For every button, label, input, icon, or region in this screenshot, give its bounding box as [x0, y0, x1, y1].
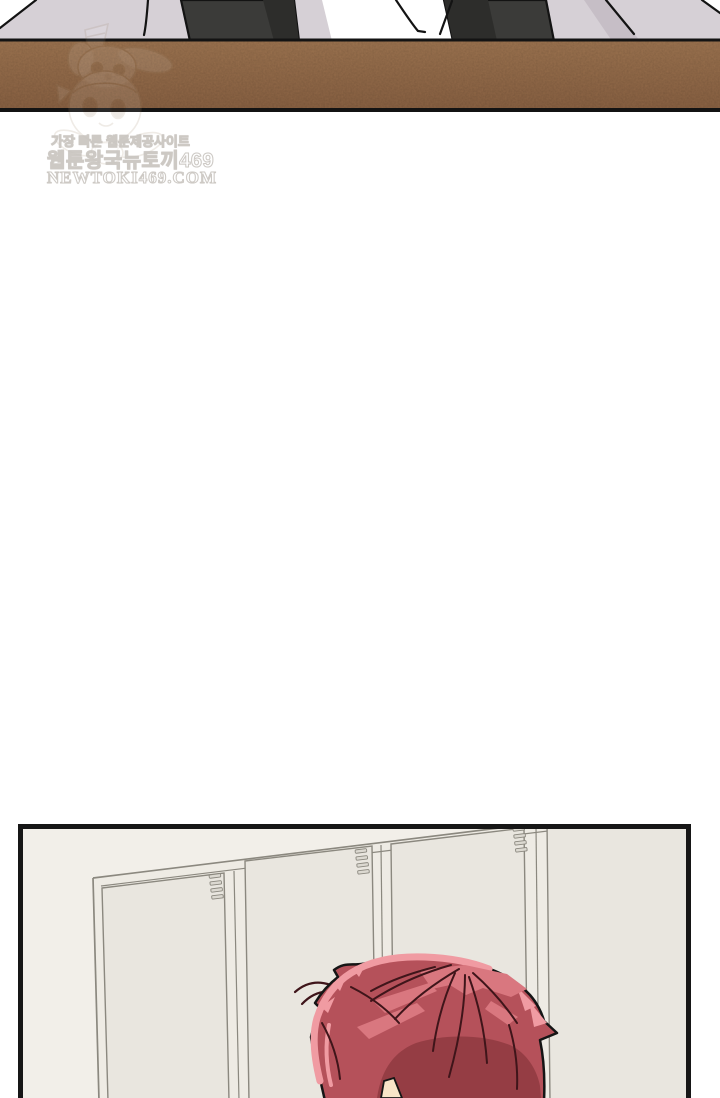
watermark-sitename: 웹툰왕국뉴토끼469	[47, 144, 214, 173]
locker-door-1	[102, 873, 229, 1098]
locker-door-4	[547, 829, 686, 1098]
desk-leg-right	[444, 0, 554, 41]
wood-floor-strip	[0, 39, 720, 113]
desk-leg-left	[181, 0, 299, 41]
watermark-domain: NEWTOKI469.COM	[47, 168, 217, 188]
panel-classroom-floor	[0, 0, 720, 112]
panel-locker-room	[18, 824, 691, 1098]
watermark-tagline: 가장 빠른 웹툰제공사이트	[51, 131, 190, 150]
floor-white-gap-center	[322, 0, 453, 41]
webtoon-page: 가장 빠른 웹툰제공사이트 웹툰왕국뉴토끼469 NEWTOKI469.COM	[0, 0, 720, 1098]
locker-room-scene	[23, 829, 686, 1098]
